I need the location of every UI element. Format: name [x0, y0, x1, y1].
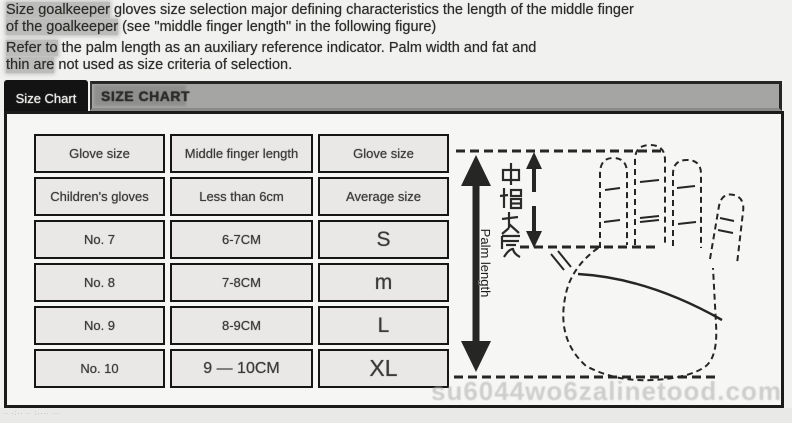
table-cell-children-gloves: Children's gloves	[34, 177, 165, 216]
intro-line-1-rest: gloves size selection major defining cha…	[110, 2, 634, 18]
intro-line-3-lead: Refer to	[6, 40, 58, 56]
intro-line-4-lead: thin are	[6, 57, 54, 73]
size-chart-bar-title: SIZE CHART	[92, 88, 190, 104]
intro-line-3: Refer to the palm length as an auxiliary…	[6, 40, 786, 57]
table-cell-6-7cm: 6-7CM	[170, 220, 313, 259]
middle-finger-length-arrow	[526, 152, 542, 248]
knuckle-marks	[551, 180, 734, 270]
intro-line-2: of the goalkeeper (see "middle finger le…	[6, 19, 786, 36]
table-cell-9-10cm: 9 — 10CM	[170, 349, 313, 388]
intro-line-2-rest: (see "middle finger length" in the follo…	[118, 19, 436, 35]
intro-line-1: Size goalkeeper gloves size selection ma…	[6, 2, 786, 19]
intro-text: Size goalkeeper gloves size selection ma…	[6, 2, 786, 74]
table-cell-no8: No. 8	[34, 263, 165, 302]
footer-strip: ·· ·:·· ·· :···· ···	[0, 408, 792, 423]
table-cell-average-size: Average size	[318, 177, 449, 216]
intro-line-4-rest: not used as size criteria of selection.	[54, 57, 292, 73]
table-cell-size-s: S	[318, 220, 449, 259]
table-cell-no10: No. 10	[34, 349, 165, 388]
table-cell-size-xl: XL	[318, 349, 449, 388]
table-cell-8-9cm: 8-9CM	[170, 306, 313, 345]
size-table: Glove size Middle finger length Glove si…	[34, 134, 449, 388]
table-header-glove-size-2: Glove size	[318, 134, 449, 173]
intro-line-2-lead: of the goalkeeper	[6, 19, 118, 35]
hand-measurement-diagram: Palm length	[448, 126, 790, 410]
table-cell-7-8cm: 7-8CM	[170, 263, 313, 302]
table-cell-less-than-6cm: Less than 6cm	[170, 177, 313, 216]
product-size-chart-image: { "intro": { "lines": [ { "lead": "Size …	[0, 0, 792, 423]
palm-length-label: Palm length	[478, 229, 493, 298]
table-header-middle-finger: Middle finger length	[170, 134, 313, 173]
table-cell-no7: No. 7	[34, 220, 165, 259]
table-cell-size-l: L	[318, 306, 449, 345]
intro-line-3-rest: the palm length as an auxiliary referenc…	[58, 40, 537, 56]
table-cell-size-m: m	[318, 263, 449, 302]
tab-size-chart-label: Size Chart	[16, 91, 77, 106]
size-chart-panel: Glove size Middle finger length Glove si…	[4, 111, 784, 408]
table-header-glove-size: Glove size	[34, 134, 165, 173]
table-cell-no9: No. 9	[34, 306, 165, 345]
footer-micro-text: ·· ·:·· ·· :···· ···	[3, 411, 61, 417]
thumb-crease-line	[578, 274, 722, 320]
intro-line-1-lead: Size goalkeeper	[6, 2, 110, 18]
intro-line-4: thin are not used as size criteria of se…	[6, 57, 786, 74]
chinese-label-middle-finger-length	[500, 163, 521, 257]
size-chart-title-bar: SIZE CHART	[90, 81, 782, 111]
